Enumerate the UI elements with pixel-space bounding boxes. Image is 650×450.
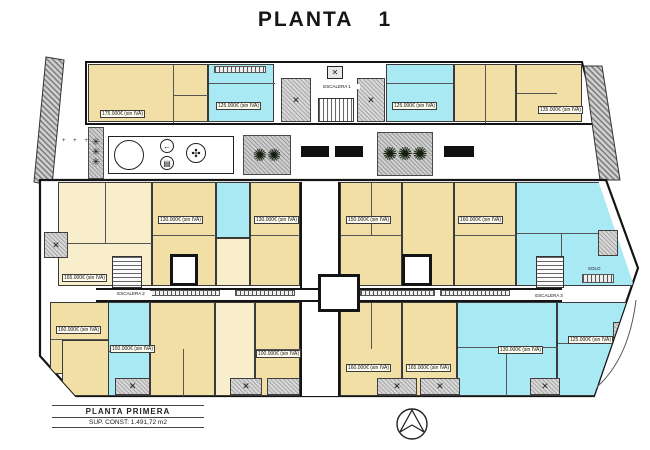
unit-price-label: 135.000€ (sin IVA)	[538, 106, 583, 114]
arrow-icon: ←	[160, 139, 174, 153]
plant-icon: ✳	[92, 158, 100, 168]
unit-price-label: 125.000€ (sin IVA)	[568, 336, 613, 344]
unit-b4	[150, 302, 215, 396]
grill-icon: ▤	[160, 156, 174, 170]
terrace-bottom: ✕	[530, 378, 560, 395]
terrace-bottom: ✕	[115, 378, 150, 395]
unit-top-4	[454, 64, 516, 122]
terrace-bottom: ✕	[420, 378, 460, 395]
unit-price-label: 165.000€ (sin IVA)	[406, 364, 451, 372]
table-icon: ✕	[52, 241, 60, 250]
unit-a5	[340, 182, 402, 286]
patio-right	[402, 254, 432, 286]
terrace-top-left: ✕	[281, 78, 311, 122]
unit-price-label: 130.000€ (sin IVA)	[254, 216, 299, 224]
bench-3	[444, 146, 474, 157]
stairwell-3-label: ESCALERA 3	[526, 293, 572, 298]
unit-price-label: 150.000€ (sin IVA)	[110, 345, 155, 353]
terrace-a: ✕	[44, 232, 68, 258]
corridor-counter	[235, 290, 295, 296]
floor-plan-sheet: PLANTA 1 ✕ ✕ ESCALERA 1 ✕	[0, 0, 650, 450]
central-core	[318, 274, 360, 312]
table-icon: ✕	[436, 382, 444, 391]
corridor-counter	[440, 290, 510, 296]
corridor-counter	[150, 290, 220, 296]
unit-price-label: 160.000€ (sin IVA)	[56, 326, 101, 334]
kitchen-counter	[214, 66, 266, 73]
terrace-bottom: ✕	[230, 378, 262, 395]
solo-note: SOLO	[588, 266, 601, 271]
palm-icon: ✺✺✺	[382, 145, 427, 163]
palm-icon: ✺✺	[253, 147, 282, 164]
corridor-counter	[360, 290, 435, 296]
terrace-bottom	[267, 378, 300, 395]
stairs-2	[112, 256, 142, 288]
planter-palms-1: ✺✺	[243, 135, 291, 175]
spa-ellipse	[114, 140, 144, 170]
unit-price-label: 100.000€ (sin IVA)	[256, 350, 301, 358]
terrace-top-right: ✕	[357, 78, 385, 122]
unit-price-label: 165.000€ (sin IVA)	[62, 274, 107, 282]
patio-left	[170, 254, 198, 286]
survey-marks: + + +	[62, 138, 91, 144]
table-icon: ✕	[129, 382, 137, 391]
unit-price-label: 130.000€ (sin IVA)	[498, 346, 543, 354]
planter-palms-2: ✺✺✺	[377, 132, 433, 176]
bench-1	[301, 146, 329, 157]
bench-box	[582, 274, 614, 283]
stairs-3	[536, 256, 564, 288]
bench-2	[335, 146, 363, 157]
title-block-name: PLANTA PRIMERA	[52, 405, 204, 418]
unit-price-label: 160.000€ (sin IVA)	[346, 364, 391, 372]
stairwell-2-label: ESCALERA 2	[110, 291, 152, 296]
left-hatched-band	[34, 57, 64, 186]
title-block: PLANTA PRIMERA SUP. CONST: 1.491,72 m2	[52, 405, 204, 428]
unit-price-label: 160.000€ (sin IVA)	[458, 216, 503, 224]
table-icon: ✕	[367, 96, 375, 105]
title-block-area: SUP. CONST: 1.491,72 m2	[52, 418, 204, 428]
table-icon: ✕	[292, 96, 300, 105]
unit-a3b	[216, 238, 250, 286]
unit-price-label: 150.000€ (sin IVA)	[346, 216, 391, 224]
unit-a3	[216, 182, 250, 238]
unit-price-label: 175.000€ (sin IVA)	[100, 110, 145, 118]
table-icon: ✕	[541, 382, 549, 391]
terrace-solo	[598, 230, 618, 256]
north-arrow-icon	[397, 409, 427, 439]
terrace-bottom: ✕	[377, 378, 417, 395]
unit-price-label: 125.000€ (sin IVA)	[392, 102, 437, 110]
unit-a7	[454, 182, 516, 286]
unit-a4	[250, 182, 300, 286]
elevator-icon: ✕	[327, 66, 343, 79]
unit-price-label: 125.000€ (sin IVA)	[216, 102, 261, 110]
flower-icon: ✣	[186, 143, 206, 163]
stairs-1	[318, 98, 354, 122]
stairwell-1-label: ESCALERA 1	[314, 84, 360, 89]
table-icon: ✕	[393, 382, 401, 391]
unit-top-3	[386, 64, 454, 122]
planter-vertical: ✳ ✳ ✳	[88, 127, 104, 179]
main-body: ✕ SOLO ESCA	[40, 180, 638, 396]
table-icon: ✕	[242, 382, 250, 391]
unit-price-label: 130.000€ (sin IVA)	[158, 216, 203, 224]
